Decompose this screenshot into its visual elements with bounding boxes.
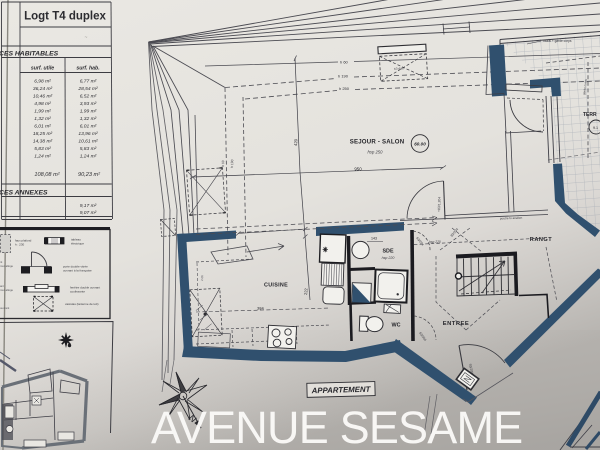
svg-text:Logt T4 duplex: Logt T4 duplex <box>24 11 106 23</box>
svg-text:4,98 m²: 4,98 m² <box>34 101 51 107</box>
svg-text:6,52 m²: 6,52 m² <box>80 94 97 100</box>
svg-text:WC: WC <box>392 323 401 329</box>
svg-text:9.1: 9.1 <box>593 126 598 130</box>
svg-text:3,93 m²: 3,93 m² <box>80 101 97 107</box>
svg-text:CUISINE: CUISINE <box>264 283 288 289</box>
svg-text:67x54x: 67x54x <box>394 66 404 71</box>
svg-text:ouvrant à la française: ouvrant à la française <box>63 269 92 273</box>
svg-text:coulissante: coulissante <box>70 290 85 294</box>
svg-text:~: ~ <box>85 35 88 41</box>
svg-text:ouvrant: ouvrant <box>0 306 10 310</box>
svg-text:6,98 m²: 6,98 m² <box>34 79 51 85</box>
svg-text:SURFACES ANNEXES: SURFACES ANNEXES <box>0 190 48 197</box>
svg-text:90,23 m²: 90,23 m² <box>78 172 101 178</box>
svg-text:108,08 m²: 108,08 m² <box>34 172 60 178</box>
svg-text:AVENUE SESAME: AVENUE SESAME <box>151 402 522 450</box>
svg-text:h : 230: h : 230 <box>15 243 25 247</box>
svg-text:1,32 m²: 1,32 m² <box>34 116 51 122</box>
svg-text:60.00: 60.00 <box>414 141 426 146</box>
svg-text:RANGT: RANGT <box>530 237 552 243</box>
svg-text:10,46 m²: 10,46 m² <box>33 94 53 100</box>
svg-text:mur allège: mur allège <box>0 264 14 268</box>
svg-text:420: 420 <box>293 138 298 146</box>
svg-text:36,24 m²: 36,24 m² <box>33 86 53 92</box>
svg-text:222: 222 <box>303 287 309 295</box>
svg-text:6,01 m²: 6,01 m² <box>34 124 51 130</box>
svg-text:950: 950 <box>354 167 362 172</box>
svg-text:APPARTEMENT: APPARTEMENT <box>311 385 372 396</box>
svg-text:SEJOUR - SALON: SEJOUR - SALON <box>350 139 405 146</box>
svg-text:h 250: h 250 <box>339 86 350 91</box>
svg-text:SURFACES HABITABLES: SURFACES HABITABLES <box>0 51 59 58</box>
svg-text:384: 384 <box>257 306 264 311</box>
svg-text:h 60: h 60 <box>221 160 225 167</box>
svg-text:h 60: h 60 <box>340 60 349 65</box>
svg-text:mural + garde corps: mural + garde corps <box>543 39 572 43</box>
svg-text:1,99 m²: 1,99 m² <box>34 109 51 115</box>
svg-text:+83/1.204: +83/1.204 <box>437 197 442 212</box>
svg-text:h 190: h 190 <box>230 159 234 168</box>
svg-text:hsp 250: hsp 250 <box>368 150 384 155</box>
svg-text:28,54 m²: 28,54 m² <box>77 86 98 92</box>
svg-text:5,83 m²: 5,83 m² <box>34 146 51 152</box>
svg-text:ENTREE: ENTREE <box>443 321 470 327</box>
svg-text:mur allège: mur allège <box>0 288 14 292</box>
svg-text:14,38 m²: 14,38 m² <box>33 139 53 145</box>
svg-text:9,17 m²: 9,17 m² <box>80 203 97 209</box>
svg-text:TERR: TERR <box>583 112 597 118</box>
svg-text:électrique: électrique <box>71 242 84 246</box>
svg-text:18,25 m²: 18,25 m² <box>33 131 53 137</box>
svg-text:poutre to anellen: poutre to anellen <box>500 216 523 221</box>
svg-text:1,32 m²: 1,32 m² <box>80 116 97 122</box>
svg-text:13,96 m²: 13,96 m² <box>78 131 98 137</box>
svg-text:2.06: 2.06 <box>200 275 204 281</box>
svg-text:vasistas (lanterne de toit): vasistas (lanterne de toit) <box>65 302 99 306</box>
svg-text:h 190: h 190 <box>338 74 349 79</box>
svg-text:5,83 m²: 5,83 m² <box>80 146 97 152</box>
svg-text:hsp 220: hsp 220 <box>429 240 441 244</box>
svg-text:surf. utile: surf. utile <box>31 66 54 72</box>
svg-text:surf. hab.: surf. hab. <box>76 66 99 72</box>
svg-text:SDE: SDE <box>382 249 393 255</box>
svg-text:143: 143 <box>371 237 377 241</box>
svg-text:1,24 m²: 1,24 m² <box>34 154 51 160</box>
svg-text:1,99 m²: 1,99 m² <box>80 109 97 115</box>
svg-text:6,77 m²: 6,77 m² <box>80 79 97 85</box>
svg-text:9,07 m²: 9,07 m² <box>80 210 97 216</box>
svg-text:hsp 220: hsp 220 <box>382 256 395 260</box>
svg-text:1,24 m²: 1,24 m² <box>80 154 97 160</box>
svg-text:10,61 m²: 10,61 m² <box>78 139 98 145</box>
svg-text:6,01 m²: 6,01 m² <box>80 124 97 130</box>
